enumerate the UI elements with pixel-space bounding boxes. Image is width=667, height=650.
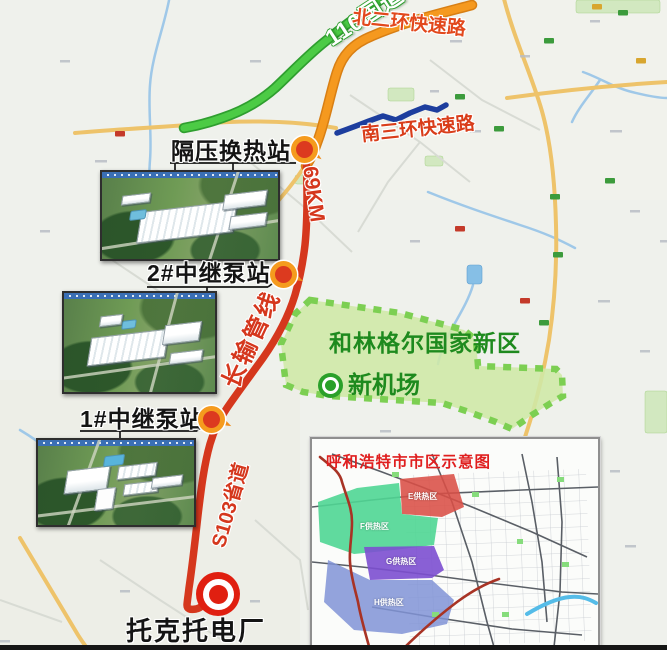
power-plant-marker bbox=[196, 572, 240, 616]
heat-exchange-station-label: 隔压换热站 bbox=[171, 139, 291, 163]
new-area-name-label: 和林格尔国家新区 bbox=[329, 331, 521, 355]
airport-marker bbox=[318, 373, 343, 398]
inset-title: 呼和浩特市市区示意图 bbox=[326, 450, 491, 472]
pump-station-2-marker bbox=[270, 261, 297, 288]
bottom-border-bar bbox=[0, 645, 667, 650]
photo-caption-bar bbox=[102, 172, 278, 178]
photo-caption-bar bbox=[38, 440, 194, 446]
zone-h-label: H供热区 bbox=[374, 597, 404, 608]
pump-station-2-label: 2#中继泵站 bbox=[147, 261, 271, 285]
hohhot-city-inset-map: 呼和浩特市市区示意图 E供热区 F供热区 G供热区 H供热区 bbox=[310, 437, 600, 650]
zone-f-label: F供热区 bbox=[360, 521, 389, 532]
helingeer-new-area-polygon bbox=[281, 300, 563, 429]
heat-exchange-station-marker bbox=[291, 136, 318, 163]
pump-station-1-photo bbox=[36, 438, 196, 527]
airport-label: 新机场 bbox=[348, 373, 420, 398]
reservoir bbox=[467, 265, 482, 284]
heat-exchange-station-photo bbox=[100, 170, 280, 261]
pump-station-1-label: 1#中继泵站 bbox=[80, 407, 204, 431]
zone-g-label: G供热区 bbox=[386, 556, 416, 567]
photo-caption-bar bbox=[64, 293, 215, 299]
pump-station-2-photo bbox=[62, 291, 217, 394]
zone-e-label: E供热区 bbox=[408, 491, 437, 502]
pump-station-1-marker bbox=[198, 406, 225, 433]
power-plant-label: 托克托电厂 bbox=[126, 618, 266, 645]
pipeline-route-map: 呼和浩特市市区示意图 E供热区 F供热区 G供热区 H供热区 110国道 北二环… bbox=[0, 0, 667, 650]
